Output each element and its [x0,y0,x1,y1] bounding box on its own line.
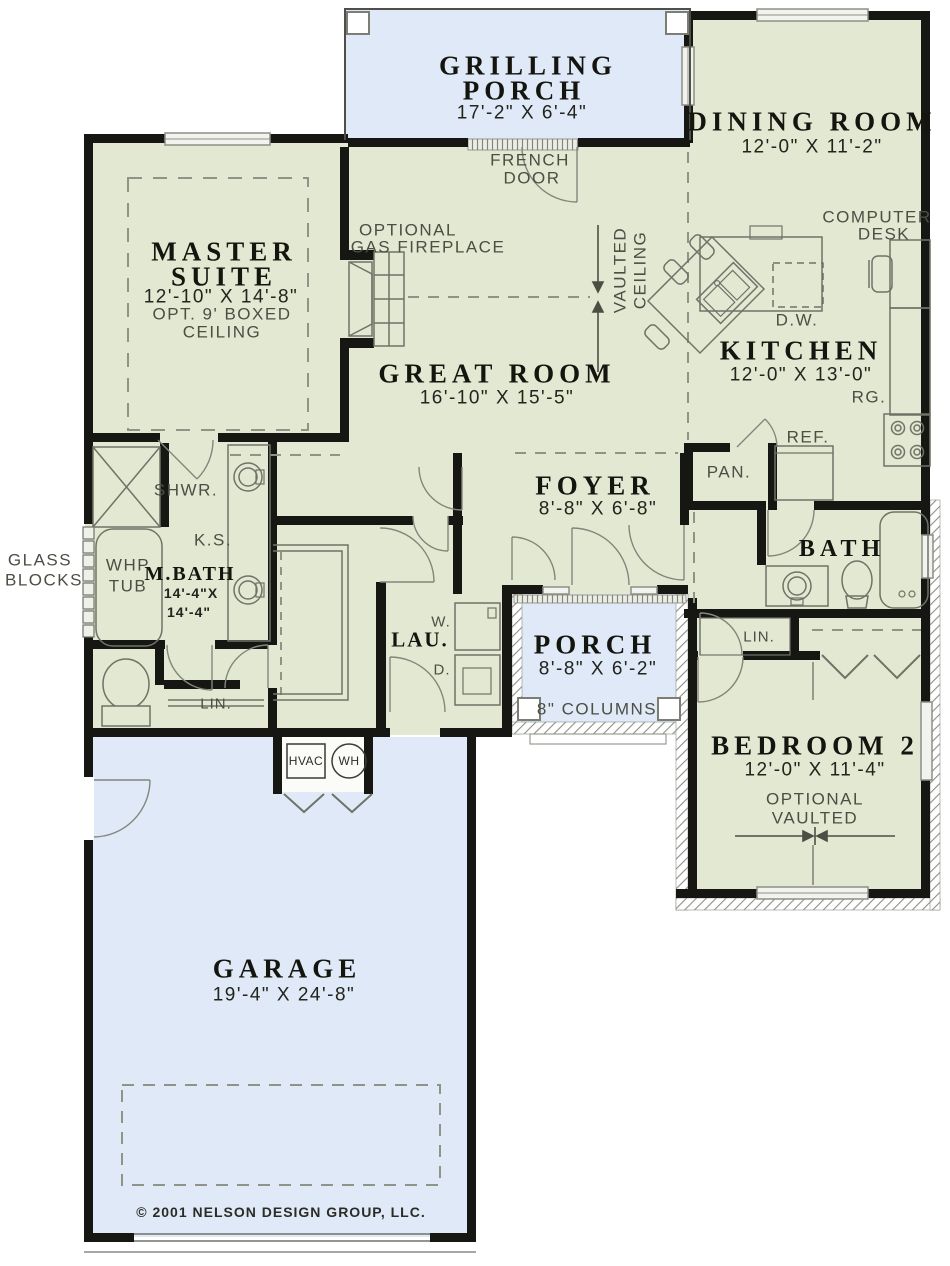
bedroom2-note-1: OPTIONAL [766,791,864,808]
garage-label: GARAGE [213,956,362,983]
garage-door-gap [84,777,94,840]
pantry-label: PAN. [707,464,751,481]
water-heater-label: WH [339,755,360,767]
laundry-label: LAU. [391,630,449,651]
linen-bath-label: LIN. [743,630,775,645]
dryer-label: D. [434,663,451,678]
vaulted-ceiling-label-2: CEILING [632,231,649,310]
great-room-label: GREAT ROOM [378,361,615,388]
kitchen-dims: 12'-0" X 13'-0" [730,366,873,385]
dining-room-label: DINING ROOM [687,109,936,136]
hvac-label: HVAC [289,755,323,767]
kitchen-label: KITCHEN [720,338,883,365]
whirlpool-label-1: WHP [106,557,150,574]
bedroom2-note-2: VAULTED [772,810,858,827]
whirlpool-label-2: TUB [109,578,148,595]
dishwasher-label: D.W. [776,312,819,329]
refrigerator-label: REF. [787,429,830,446]
copyright-notice: © 2001 NELSON DESIGN GROUP, LLC. [136,1205,425,1219]
master-bath-dims-1: 14'-4"X [164,586,218,600]
porch-step [530,734,666,744]
bath-label: BATH [799,537,885,561]
foyer-label: FOYER [535,473,655,500]
dining-room-dims: 12'-0" X 11'-2" [741,138,882,157]
porch-dims: 8'-8" X 6'-2" [539,660,657,679]
foyer-dims: 8'-8" X 6'-8" [539,500,657,519]
great-room-dims: 16'-10" X 15'-5" [420,389,575,408]
computer-desk-label-2: DESK [858,226,910,243]
glass-blocks-label-2: BLOCKS [5,572,83,589]
shower-label: SHWR. [154,482,218,499]
fireplace-label-1: OPTIONAL [359,222,457,239]
porch-columns-note: 8" COLUMNS [537,701,657,718]
french-door-label-1: FRENCH [490,152,570,169]
garage-dims: 19'-4" X 24'-8" [213,986,356,1005]
master-suite-note-1: OPT. 9' BOXED [153,306,292,323]
french-door-label-2: DOOR [504,170,561,187]
fireplace-label-2: GAS FIREPLACE [351,239,506,256]
floor-plan: GRILLING PORCH 17'-2" X 6'-4" FRENCH DOO… [0,0,950,1266]
grilling-porch-label-2: PORCH [463,78,586,105]
range-label: RG. [852,389,887,406]
master-bath-label: M.BATH [144,564,235,584]
glass-blocks-label-1: GLASS [8,552,72,569]
knee-space-label: K.S. [194,532,232,549]
computer-desk-label-1: COMPUTER [822,209,931,226]
master-bath-dims-2: 14'-4" [167,605,211,619]
vaulted-ceiling-label-1: VAULTED [612,227,629,313]
bedroom2-label: BEDROOM 2 [711,733,919,760]
master-suite-note-2: CEILING [183,324,262,341]
floor-plan-drawing [0,0,950,1266]
washer-label: W. [431,615,451,630]
grilling-porch-dims: 17'-2" X 6'-4" [457,104,587,123]
bedroom2-dims: 12'-0" X 11'-4" [744,761,885,780]
linen-master-label: LIN. [200,697,232,712]
porch-label: PORCH [534,632,657,659]
